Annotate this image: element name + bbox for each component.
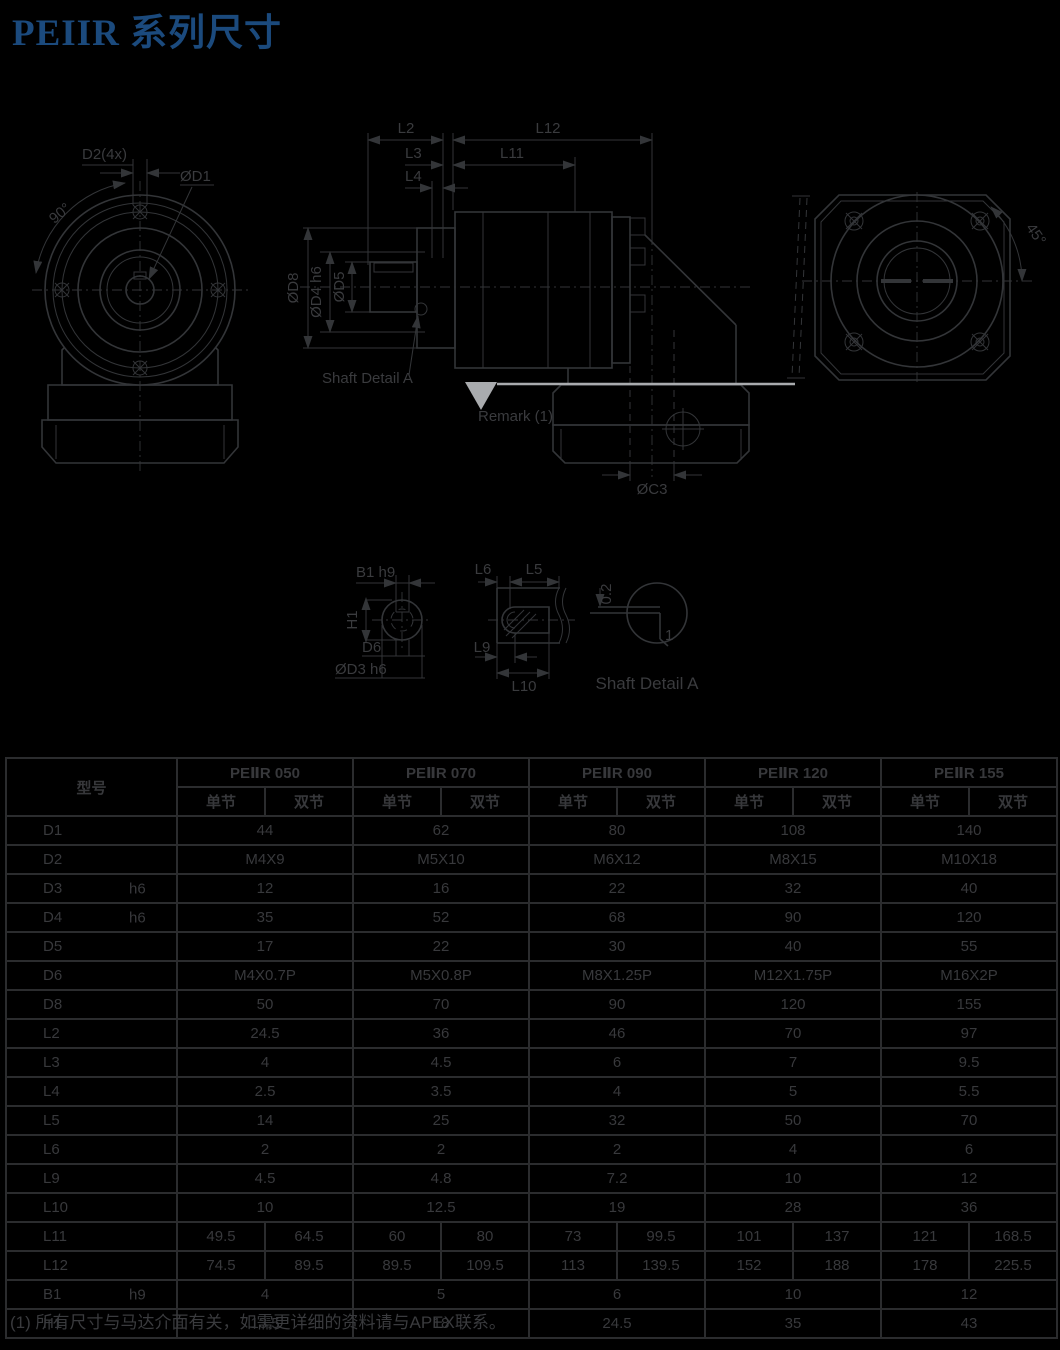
model-cell: PEⅡR 070 [353,758,529,787]
dim-cell: 43 [881,1309,1057,1338]
row-label: D6 [43,967,62,984]
dim-cell: 7 [705,1048,881,1077]
dim-cell: 9.5 [881,1048,1057,1077]
dim-label-l2: L2 [398,120,415,137]
dim-cell: 178 [881,1251,969,1280]
row-label-cell: L9 [6,1164,177,1193]
page-title: PEIIR 系列尺寸 [12,2,282,56]
dim-label-c3: ØC3 [637,481,668,498]
row-label: L10 [43,1199,68,1216]
dim-cell: 32 [705,874,881,903]
dim-cell: 35 [705,1309,881,1338]
dim-cell: M8X15 [705,845,881,874]
row-label-cell: D8 [6,990,177,1019]
dim-cell: M4X0.7P [177,961,353,990]
dim-cell: 80 [441,1222,529,1251]
dim-cell: 168.5 [969,1222,1057,1251]
dim-cell: 68 [529,903,705,932]
dim-cell: 49.5 [177,1222,265,1251]
dim-cell: 24.5 [177,1019,353,1048]
dim-cell: 6 [881,1135,1057,1164]
dim-label-l12: L12 [535,120,560,137]
table-row: D3h61216223240 [6,874,1057,903]
dim-cell: 5 [353,1280,529,1309]
table-row: L1274.589.589.5109.5113139.5152188178225… [6,1251,1057,1280]
dim-cell: 40 [705,932,881,961]
dim-label-l9: L9 [474,639,491,656]
dim-cell: 74.5 [177,1251,265,1280]
model-cell: PEⅡR 050 [177,758,353,787]
dim-cell: 225.5 [969,1251,1057,1280]
dim-cell: 7.2 [529,1164,705,1193]
dim-cell: 90 [705,903,881,932]
dim-cell: 4.8 [353,1164,529,1193]
dim-cell: 2 [529,1135,705,1164]
table-row: D1446280108140 [6,816,1057,845]
row-label: L4 [43,1083,60,1100]
footnote: (1) 所有尺寸与马达介面有关，如需更详细的资料请与APEX联系。 [10,1308,506,1333]
model-cell: PEⅡR 120 [705,758,881,787]
dim-label-l3: L3 [405,145,422,162]
stage-cell: 单节 [529,787,617,816]
row-label: D2 [43,851,62,868]
dim-cell: 22 [529,874,705,903]
dim-cell: 64.5 [265,1222,353,1251]
row-label: D1 [43,822,62,839]
dim-cell: 73 [529,1222,617,1251]
row-label: L9 [43,1170,60,1187]
table-body: D1446280108140D2M4X9M5X10M6X12M8X15M10X1… [6,816,1057,1338]
dim-cell: 28 [705,1193,881,1222]
row-label-cell: L4 [6,1077,177,1106]
dim-cell: M5X0.8P [353,961,529,990]
dim-cell: 32 [529,1106,705,1135]
rear-view: 45° [787,192,1049,385]
dim-label-chamfer: 1 [665,627,673,644]
dim-cell: 109.5 [441,1251,529,1280]
stage-cell: 单节 [353,787,441,816]
row-tolerance: h6 [129,909,146,926]
dim-label-90deg: 90° [46,200,74,228]
dim-cell: 25 [353,1106,529,1135]
row-label: L11 [43,1228,67,1245]
row-label: L3 [43,1054,60,1071]
dim-label-d3: ØD3 h6 [335,661,387,678]
dim-cell: 12 [177,874,353,903]
row-tolerance: h9 [129,1286,146,1303]
dim-cell: 44 [177,816,353,845]
dim-cell: 2 [353,1135,529,1164]
dim-cell: 4 [705,1135,881,1164]
stage-cell: 双节 [265,787,353,816]
dim-cell: 50 [177,990,353,1019]
dim-cell: 90 [529,990,705,1019]
table-row: L622246 [6,1135,1057,1164]
table-row: L1149.564.560807399.5101137121168.5 [6,1222,1057,1251]
dim-cell: 60 [353,1222,441,1251]
dim-cell: 12 [881,1280,1057,1309]
model-cell: PEⅡR 155 [881,758,1057,787]
dim-label-d6: D6 [362,639,381,656]
dim-cell: 10 [705,1280,881,1309]
dim-cell: 140 [881,816,1057,845]
row-label: L12 [43,1257,68,1274]
dim-cell: 46 [529,1019,705,1048]
dim-label-d1: ØD1 [180,168,211,185]
dim-cell: 12 [881,1164,1057,1193]
dim-cell: M12X1.75P [705,961,881,990]
row-label: B1 [43,1286,61,1303]
technical-drawing: 90° D2(4x) ØD1 L2 L12 [0,95,1060,720]
dim-cell: 152 [705,1251,793,1280]
dim-label-l11: L11 [500,145,524,162]
dimension-table: 型号 PEⅡR 050 PEⅡR 070 PEⅡR 090 PEⅡR 120 P… [5,757,1058,1339]
shaft-detail-a: 0.2 1 Shaft Detail A [590,583,699,693]
dim-cell: 19 [529,1193,705,1222]
dim-label-d8: ØD8 [285,273,302,304]
table-row: L224.536467097 [6,1019,1057,1048]
dim-cell: 40 [881,874,1057,903]
dim-cell: 108 [705,816,881,845]
dim-cell: 36 [881,1193,1057,1222]
dim-cell: 89.5 [353,1251,441,1280]
dim-label-45deg: 45° [1022,220,1049,248]
table-row: L51425325070 [6,1106,1057,1135]
dim-cell: 5 [705,1077,881,1106]
table-row: L42.53.5455.5 [6,1077,1057,1106]
row-label: D3 [43,880,62,897]
row-label-cell: L6 [6,1135,177,1164]
dim-cell: 2.5 [177,1077,353,1106]
front-view: 90° D2(4x) ØD1 [32,146,248,473]
row-label-cell: D4h6 [6,903,177,932]
table-row: D2M4X9M5X10M6X12M8X15M10X18 [6,845,1057,874]
dim-cell: 139.5 [617,1251,705,1280]
dim-cell: 188 [793,1251,881,1280]
dim-cell: 10 [177,1193,353,1222]
dim-cell: 70 [705,1019,881,1048]
dim-cell: M4X9 [177,845,353,874]
row-label-cell: L3 [6,1048,177,1077]
stage-cell: 双节 [793,787,881,816]
model-header-cell: 型号 [6,758,177,816]
dim-label-l4: L4 [405,168,422,185]
remark-label: Remark (1) [478,408,553,425]
row-label: L2 [43,1025,60,1042]
table-row: L101012.5192836 [6,1193,1057,1222]
row-label-cell: D5 [6,932,177,961]
table-row: L344.5679.5 [6,1048,1057,1077]
dim-cell: M10X18 [881,845,1057,874]
dim-cell: 6 [529,1048,705,1077]
table-row: L94.54.87.21012 [6,1164,1057,1193]
dim-cell: M8X1.25P [529,961,705,990]
stage-cell: 双节 [617,787,705,816]
table-row: B1h94561012 [6,1280,1057,1309]
row-label-cell: L10 [6,1193,177,1222]
dim-cell: 6 [529,1280,705,1309]
dim-cell: M6X12 [529,845,705,874]
dim-cell: 10 [705,1164,881,1193]
dim-cell: 97 [881,1019,1057,1048]
dim-cell: 120 [705,990,881,1019]
dim-cell: 101 [705,1222,793,1251]
stage-cell: 单节 [705,787,793,816]
row-label-cell: D2 [6,845,177,874]
row-label: D8 [43,996,62,1013]
dim-cell: 2 [177,1135,353,1164]
dim-cell: 99.5 [617,1222,705,1251]
dim-cell: 4 [529,1077,705,1106]
table-row: D4h635526890120 [6,903,1057,932]
dim-cell: 3.5 [353,1077,529,1106]
row-label: D5 [43,938,62,955]
row-label-cell: D1 [6,816,177,845]
row-label-cell: L2 [6,1019,177,1048]
dim-cell: 22 [353,932,529,961]
dim-cell: 5.5 [881,1077,1057,1106]
dim-cell: 155 [881,990,1057,1019]
dim-cell: 35 [177,903,353,932]
dim-label-offset: 0.2 [598,584,615,605]
stage-cell: 单节 [881,787,969,816]
dim-cell: 14 [177,1106,353,1135]
dim-cell: 4.5 [177,1164,353,1193]
dim-cell: M5X10 [353,845,529,874]
dim-cell: 4 [177,1280,353,1309]
dim-label-l5: L5 [526,561,543,578]
dim-cell: 62 [353,816,529,845]
dim-label-h1: H1 [344,610,361,629]
dim-label-d4: ØD4 h6 [308,266,325,318]
dim-cell: 24.5 [529,1309,705,1338]
dim-label-l6: L6 [475,561,492,578]
shaft-detail-a-caption: Shaft Detail A [595,674,699,693]
dim-cell: 16 [353,874,529,903]
dim-cell: 30 [529,932,705,961]
dim-cell: 137 [793,1222,881,1251]
stage-cell: 双节 [969,787,1057,816]
dim-cell: 120 [881,903,1057,932]
shaft-detail-label: Shaft Detail A [322,370,413,387]
dim-label-d2: D2(4x) [82,146,127,163]
dim-cell: 4 [177,1048,353,1077]
dim-cell: M16X2P [881,961,1057,990]
model-cell: PEⅡR 090 [529,758,705,787]
dim-label-l10: L10 [511,678,536,695]
row-label: D4 [43,909,62,926]
dim-cell: 4.5 [353,1048,529,1077]
dim-cell: 113 [529,1251,617,1280]
dim-cell: 70 [881,1106,1057,1135]
row-label-cell: B1h9 [6,1280,177,1309]
catalog-page: PEIIR 系列尺寸 [0,0,1060,1350]
row-label-cell: D3h6 [6,874,177,903]
row-label-cell: D6 [6,961,177,990]
table-row: D6M4X0.7PM5X0.8PM8X1.25PM12X1.75PM16X2P [6,961,1057,990]
dim-cell: 17 [177,932,353,961]
table-row: D51722304055 [6,932,1057,961]
dim-cell: 12.5 [353,1193,529,1222]
remark-triangle-icon [465,382,497,410]
row-tolerance: h6 [129,880,146,897]
side-view: L2 L12 L3 L11 L4 ØD8 ØD4 h6 ØD5 [285,120,795,498]
dim-cell: 55 [881,932,1057,961]
row-label-cell: L5 [6,1106,177,1135]
table-row: D8507090120155 [6,990,1057,1019]
row-label-cell: L11 [6,1222,177,1251]
stage-cell: 双节 [441,787,529,816]
dim-cell: 52 [353,903,529,932]
row-label: L6 [43,1141,60,1158]
stage-cell: 单节 [177,787,265,816]
dim-cell: 80 [529,816,705,845]
dim-cell: 89.5 [265,1251,353,1280]
row-label: L5 [43,1112,60,1129]
dim-cell: 50 [705,1106,881,1135]
shaft-section-detail: B1 h9 H1 D6 ØD3 h6 [335,564,435,678]
dim-cell: 36 [353,1019,529,1048]
row-label-cell: L12 [6,1251,177,1280]
keyway-detail: L6 L5 L9 L10 [474,561,575,695]
dim-label-b1: B1 h9 [356,564,395,581]
model-header-row: 型号 PEⅡR 050 PEⅡR 070 PEⅡR 090 PEⅡR 120 P… [6,758,1057,787]
dim-cell: 121 [881,1222,969,1251]
dim-cell: 70 [353,990,529,1019]
